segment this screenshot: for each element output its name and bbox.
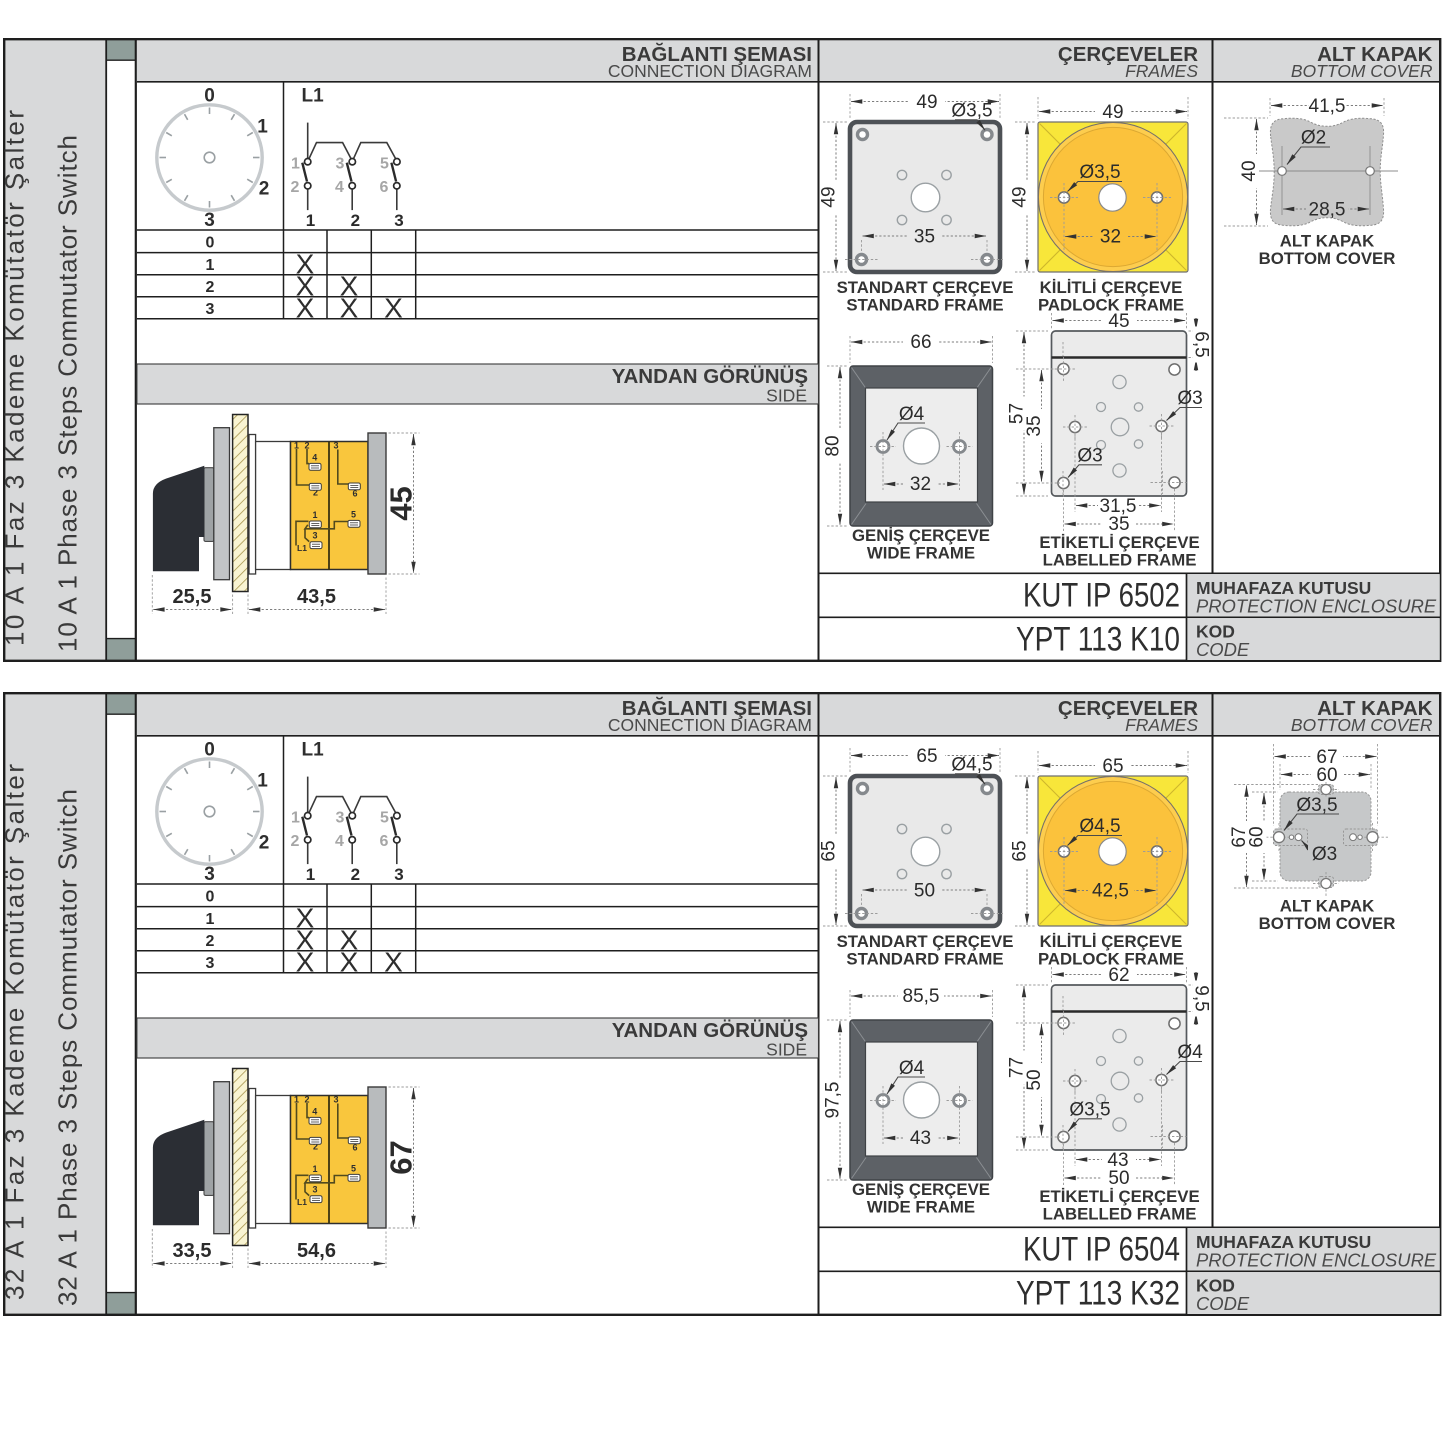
svg-text:6,5: 6,5 bbox=[1191, 331, 1212, 357]
svg-text:28,5: 28,5 bbox=[1309, 199, 1346, 220]
svg-text:Ø3,5: Ø3,5 bbox=[1079, 162, 1120, 183]
svg-text:60: 60 bbox=[1316, 765, 1337, 786]
svg-text:KUT IP 6502: KUT IP 6502 bbox=[1023, 577, 1180, 615]
svg-text:80: 80 bbox=[823, 435, 844, 456]
svg-text:97,5: 97,5 bbox=[823, 1082, 844, 1119]
svg-text:BOTTOM COVER: BOTTOM COVER bbox=[1259, 914, 1396, 933]
svg-text:32 A 1 Phase 3 Steps Commutato: 32 A 1 Phase 3 Steps Commutator Switch bbox=[53, 789, 83, 1306]
svg-text:KUT IP 6504: KUT IP 6504 bbox=[1023, 1231, 1180, 1269]
svg-text:85,5: 85,5 bbox=[903, 986, 940, 1007]
svg-text:YPT 113 K10: YPT 113 K10 bbox=[1016, 621, 1180, 659]
svg-text:Ø3,5: Ø3,5 bbox=[951, 101, 992, 122]
svg-text:Ø4,5: Ø4,5 bbox=[1079, 816, 1120, 837]
svg-text:YPT 113 K32: YPT 113 K32 bbox=[1016, 1275, 1180, 1313]
svg-text:Ø3: Ø3 bbox=[1077, 445, 1102, 466]
svg-text:66: 66 bbox=[910, 332, 931, 353]
svg-text:43,5: 43,5 bbox=[297, 586, 336, 608]
svg-text:ALT KAPAK: ALT KAPAK bbox=[1280, 897, 1374, 916]
svg-text:Ø3,5: Ø3,5 bbox=[1069, 1099, 1110, 1120]
svg-text:Ø4: Ø4 bbox=[1177, 1042, 1203, 1063]
svg-text:60: 60 bbox=[1247, 826, 1268, 847]
svg-text:Ø4: Ø4 bbox=[899, 1058, 925, 1079]
svg-text:49: 49 bbox=[1102, 102, 1123, 123]
svg-text:33,5: 33,5 bbox=[173, 1240, 212, 1262]
svg-text:Ø3: Ø3 bbox=[1312, 844, 1337, 865]
svg-text:62: 62 bbox=[1108, 965, 1129, 986]
svg-text:67: 67 bbox=[384, 1140, 419, 1174]
svg-text:25,5: 25,5 bbox=[173, 586, 212, 608]
svg-text:35: 35 bbox=[914, 226, 935, 247]
svg-text:BOTTOM COVER: BOTTOM COVER bbox=[1259, 249, 1396, 268]
svg-text:42,5: 42,5 bbox=[1092, 881, 1129, 902]
svg-text:Ø4,5: Ø4,5 bbox=[951, 755, 992, 776]
svg-text:45: 45 bbox=[384, 486, 419, 520]
svg-text:49: 49 bbox=[1010, 186, 1031, 207]
svg-text:Ø2: Ø2 bbox=[1301, 127, 1326, 148]
svg-text:32: 32 bbox=[1100, 227, 1121, 248]
svg-text:40: 40 bbox=[1239, 160, 1260, 181]
svg-text:10 A 1 Faz 3 Kademe Komütatör: 10 A 1 Faz 3 Kademe Komütatör Şalter bbox=[0, 110, 30, 646]
svg-text:50: 50 bbox=[1024, 1069, 1045, 1090]
svg-text:Ø3: Ø3 bbox=[1177, 388, 1202, 409]
svg-text:32: 32 bbox=[910, 474, 931, 495]
svg-text:50: 50 bbox=[914, 880, 935, 901]
svg-text:Ø4: Ø4 bbox=[899, 404, 925, 425]
svg-text:65: 65 bbox=[916, 746, 937, 767]
svg-text:35: 35 bbox=[1108, 514, 1129, 535]
svg-text:50: 50 bbox=[1108, 1168, 1129, 1189]
svg-text:35: 35 bbox=[1024, 415, 1045, 436]
svg-text:41,5: 41,5 bbox=[1309, 96, 1346, 117]
svg-text:10 A 1 Phase 3 Steps Commutato: 10 A 1 Phase 3 Steps Commutator Switch bbox=[53, 135, 83, 652]
svg-text:54,6: 54,6 bbox=[297, 1240, 336, 1262]
svg-text:9,5: 9,5 bbox=[1191, 985, 1212, 1011]
svg-text:Ø3,5: Ø3,5 bbox=[1296, 795, 1337, 816]
svg-text:49: 49 bbox=[819, 186, 840, 207]
svg-text:45: 45 bbox=[1108, 311, 1129, 332]
svg-text:65: 65 bbox=[1102, 756, 1123, 777]
svg-text:ALT KAPAK: ALT KAPAK bbox=[1280, 232, 1374, 251]
svg-text:65: 65 bbox=[819, 840, 840, 861]
svg-text:43: 43 bbox=[910, 1128, 931, 1149]
svg-text:32 A 1 Faz 3 Kademe Komütatör: 32 A 1 Faz 3 Kademe Komütatör Şalter bbox=[0, 764, 30, 1300]
svg-text:49: 49 bbox=[916, 92, 937, 113]
svg-text:65: 65 bbox=[1010, 840, 1031, 861]
